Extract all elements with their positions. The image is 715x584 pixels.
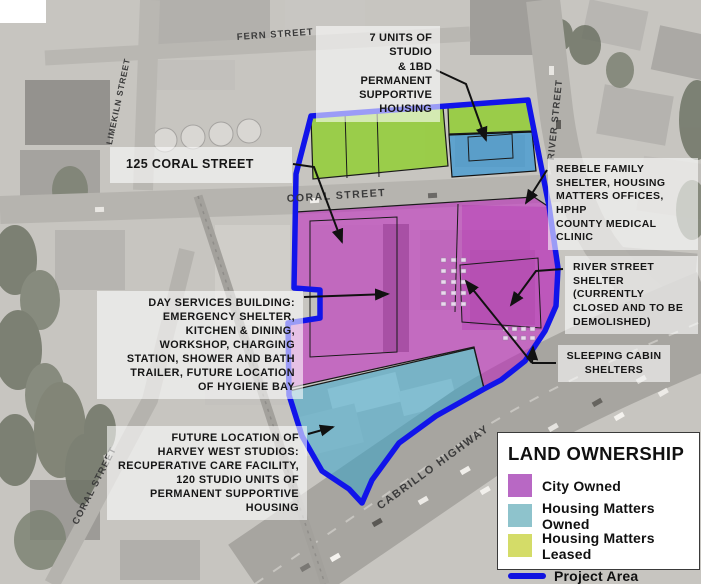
city-owned-overlay-darker-east	[462, 205, 558, 330]
page-margin-top-left	[0, 0, 46, 23]
callout-harvey-west-studios: FUTURE LOCATION OF HARVEY WEST STUDIOS: …	[107, 426, 307, 520]
callout-rebele-family-shelter: REBELE FAMILY SHELTER, HOUSING MATTERS O…	[548, 158, 698, 250]
callout-day-services-building: DAY SERVICES BUILDING: EMERGENCY SHELTER…	[97, 291, 303, 399]
legend-item-city-owned: City Owned	[508, 473, 689, 498]
legend-label: City Owned	[542, 478, 621, 494]
callout-sleeping-cabin-shelters: SLEEPING CABIN SHELTERS	[558, 345, 670, 382]
city-owned-swatch	[508, 474, 532, 497]
legend-label: Housing Matters Owned	[542, 500, 689, 532]
page-margin-right	[701, 0, 715, 584]
map-viewport: FERN STREET LIMEKILN STREET RIVER STREET…	[0, 0, 715, 584]
arrow-sleeping-east	[532, 347, 533, 363]
callout-125-coral-street: 125 CORAL STREET	[110, 147, 292, 183]
callout-river-street-shelter: RIVER STREET SHELTER (CURRENTLY CLOSED A…	[565, 256, 698, 334]
project-area-line-swatch	[508, 573, 546, 579]
legend-label: Housing Matters Leased	[542, 530, 689, 562]
housing-matters-owned-swatch	[508, 504, 532, 527]
legend-title: LAND OWNERSHIP	[508, 443, 689, 465]
callout-seven-units: 7 UNITS OF STUDIO & 1BD PERMANENT SUPPOR…	[316, 26, 440, 122]
legend-item-project-area: Project Area	[508, 563, 689, 584]
housing-matters-owned-overlay-north	[449, 132, 536, 177]
legend-item-housing-matters-leased: Housing Matters Leased	[508, 533, 689, 558]
legend-item-housing-matters-owned: Housing Matters Owned	[508, 503, 689, 528]
housing-matters-leased-swatch	[508, 534, 532, 557]
land-ownership-legend: LAND OWNERSHIP City Owned Housing Matter…	[497, 432, 700, 570]
legend-label: Project Area	[554, 568, 638, 584]
